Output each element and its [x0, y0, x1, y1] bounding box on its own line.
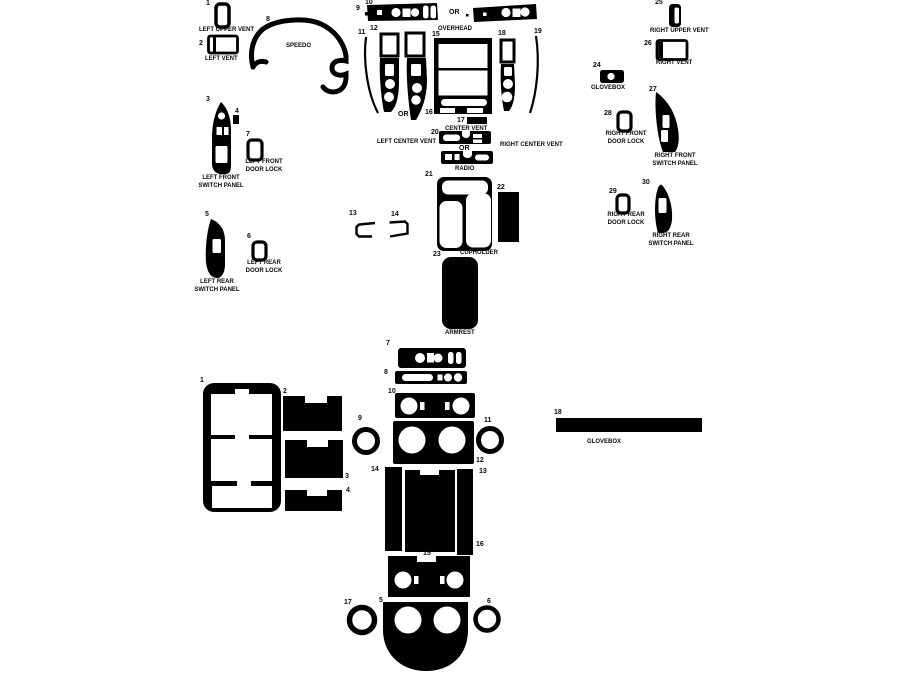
num-radio: 20	[431, 129, 439, 136]
piece-lk-door-insert-mid	[285, 440, 343, 478]
label-right-front-switch-panel: RIGHT FRONT SWITCH PANEL	[648, 153, 702, 168]
piece-lk-center-console-panel	[405, 470, 455, 552]
num-right-vent: 26	[644, 40, 652, 47]
label-right-vent: RIGHT VENT	[656, 60, 692, 68]
num-lk-ring-upper-right: 11	[484, 417, 491, 424]
num-overhead-small: 9	[356, 5, 360, 12]
dash-kit-diagram: 1 2 3 4 5 6 7 8 9 10 11 12 13 14 15 16 1…	[0, 0, 900, 675]
label-right-center-vent: RIGHT CENTER VENT	[500, 142, 563, 150]
num-console-side: 22	[497, 184, 505, 191]
or-radio: OR	[459, 145, 470, 152]
num-right-center-vent-sliver: 19	[534, 28, 542, 35]
num-lk-door-insert-small: 4	[346, 487, 350, 494]
num-lk-vent-panel: 10	[388, 388, 396, 395]
piece-lk-lower-console	[383, 602, 468, 671]
diagram-canvas	[0, 0, 900, 675]
piece-lk-lower-vent-panel	[388, 556, 470, 597]
piece-lk-switch-bar	[398, 348, 466, 368]
label-right-upper-vent: RIGHT UPPER VENT	[650, 28, 709, 36]
piece-lk-ring-upper-left	[355, 430, 378, 453]
piece-left-center-vent-b	[406, 33, 427, 120]
piece-lk-door-insert-small	[285, 490, 342, 511]
label-speedo: SPEEDO	[286, 43, 311, 51]
label-left-upper-vent: LEFT UPPER VENT	[199, 27, 254, 35]
label-glovebox-upper: GLOVEBOX	[591, 85, 625, 93]
label-left-front-switch-panel: LEFT FRONT SWITCH PANEL	[197, 175, 245, 190]
piece-switch-insert	[233, 115, 239, 124]
piece-lk-pillar-right	[457, 469, 473, 555]
label-left-rear-door-lock: LEFT REAR DOOR LOCK	[244, 260, 284, 275]
piece-lk-pillar-left	[385, 467, 402, 551]
num-lk-door-frame: 1	[200, 377, 204, 384]
num-speedo: 8	[266, 16, 270, 23]
label-left-vent: LEFT VENT	[205, 56, 238, 64]
piece-right-vent	[657, 41, 687, 60]
piece-lk-gauge-panel	[393, 421, 474, 464]
piece-center-stack	[434, 38, 492, 114]
num-bracket-left: 13	[349, 210, 357, 217]
label-armrest: ARMREST	[445, 330, 475, 338]
piece-bracket-right	[390, 222, 408, 237]
piece-lk-ring-lower-left	[350, 608, 375, 633]
piece-speedo	[251, 20, 346, 92]
piece-center-vent	[467, 117, 487, 124]
num-left-rear-switch-panel: 5	[205, 211, 209, 218]
piece-left-vent	[209, 36, 238, 53]
num-lk-ring-lower-left: 17	[344, 599, 352, 606]
piece-left-front-door-lock	[248, 140, 262, 160]
piece-lk-door-frame	[203, 383, 281, 512]
num-left-rear-door-lock: 6	[247, 233, 251, 240]
piece-lk-ring-upper-right	[479, 429, 502, 452]
piece-left-rear-switch-panel	[206, 219, 225, 278]
num-lk-door-insert-mid: 3	[345, 473, 349, 480]
num-lk-trim-strip: 8	[384, 369, 388, 376]
label-left-rear-switch-panel: LEFT REAR SWITCH PANEL	[194, 279, 240, 294]
num-lk-ring-lower-right: 6	[487, 598, 491, 605]
num-right-rear-switch-panel: 30	[642, 179, 650, 186]
piece-right-center-vent-pillar	[501, 40, 515, 111]
label-left-center-vent: LEFT CENTER VENT	[377, 139, 436, 147]
piece-bracket-left	[357, 223, 376, 237]
num-right-rear-door-lock: 29	[609, 188, 617, 195]
label-overhead: OVERHEAD	[438, 26, 472, 34]
piece-overhead-b	[466, 4, 537, 22]
num-lk-lower-console: 5	[379, 597, 383, 604]
num-lk-ring-upper-left: 9	[358, 415, 362, 422]
piece-lk-door-insert-top	[283, 396, 342, 431]
label-right-rear-door-lock: RIGHT REAR DOOR LOCK	[603, 212, 649, 227]
num-left-front-door-lock: 7	[246, 131, 250, 138]
num-overhead: 10	[365, 0, 373, 6]
num-cupholder: 21	[425, 171, 433, 178]
num-right-front-door-lock: 28	[604, 110, 612, 117]
piece-left-front-switch-panel	[212, 102, 231, 174]
num-right-upper-vent: 25	[655, 0, 663, 6]
num-lk-lower-vent-panel: 15	[423, 550, 431, 557]
piece-left-upper-vent	[216, 4, 229, 27]
piece-right-rear-switch-panel	[655, 185, 672, 233]
piece-console-side	[498, 192, 519, 242]
label-right-rear-switch-panel: RIGHT REAR SWITCH PANEL	[644, 233, 698, 248]
piece-cupholder	[437, 177, 492, 251]
num-lk-pillar-left: 14	[371, 466, 379, 473]
piece-lk-vent-panel	[395, 393, 475, 418]
piece-left-center-vent-a	[380, 34, 399, 112]
num-right-front-switch-panel: 27	[649, 86, 657, 93]
piece-glovebox-upper	[600, 70, 624, 83]
num-left-center-vent: 12	[370, 25, 378, 32]
piece-right-front-door-lock	[618, 112, 631, 131]
num-lk-pillar-right: 13	[479, 468, 487, 475]
num-bracket-right: 14	[391, 211, 399, 218]
num-center-stack-lower: 16	[425, 109, 433, 116]
piece-lk-trim-strip	[395, 371, 467, 384]
num-left-front-switch-panel: 3	[206, 96, 210, 103]
piece-left-rear-door-lock	[253, 242, 266, 260]
num-lk-door-insert-top: 2	[283, 388, 287, 395]
num-left-upper-vent: 1	[206, 0, 210, 7]
num-lk-gauge-panel: 12	[476, 457, 484, 464]
piece-left-center-vent-sliver	[365, 37, 378, 113]
label-radio: RADIO	[455, 166, 474, 174]
or-overhead: OR	[449, 9, 460, 16]
label-left-front-door-lock: LEFT FRONT DOOR LOCK	[244, 159, 284, 174]
label-center-vent: CENTER VENT	[445, 126, 487, 134]
piece-right-upper-vent	[669, 4, 681, 27]
piece-right-rear-door-lock	[617, 195, 629, 213]
num-glovebox-upper: 24	[593, 62, 601, 69]
num-center-vent: 17	[457, 117, 465, 124]
label-cupholder: CUPHOLDER	[460, 250, 498, 258]
piece-right-center-vent-sliver	[530, 36, 538, 113]
piece-overhead-a	[367, 3, 438, 21]
num-lk-switch-bar: 7	[386, 340, 390, 347]
label-right-front-door-lock: RIGHT FRONT DOOR LOCK	[603, 131, 649, 146]
or-left-center-vent: OR	[398, 111, 409, 118]
piece-radio-b	[441, 151, 493, 164]
piece-lk-ring-lower-right	[476, 608, 499, 631]
num-lk-center-console: 16	[476, 541, 484, 548]
num-lk-glovebox: 18	[554, 409, 562, 416]
num-armrest: 23	[433, 251, 441, 258]
piece-lk-glovebox	[556, 418, 702, 432]
piece-right-front-switch-panel	[655, 92, 678, 152]
piece-armrest	[442, 257, 478, 329]
label-lk-glovebox: GLOVEBOX	[587, 439, 621, 447]
num-right-center-vent-pillar: 18	[498, 30, 506, 37]
num-left-center-vent-sliver: 11	[358, 29, 365, 36]
num-left-vent: 2	[199, 40, 203, 47]
num-switch-insert: 4	[235, 108, 239, 115]
